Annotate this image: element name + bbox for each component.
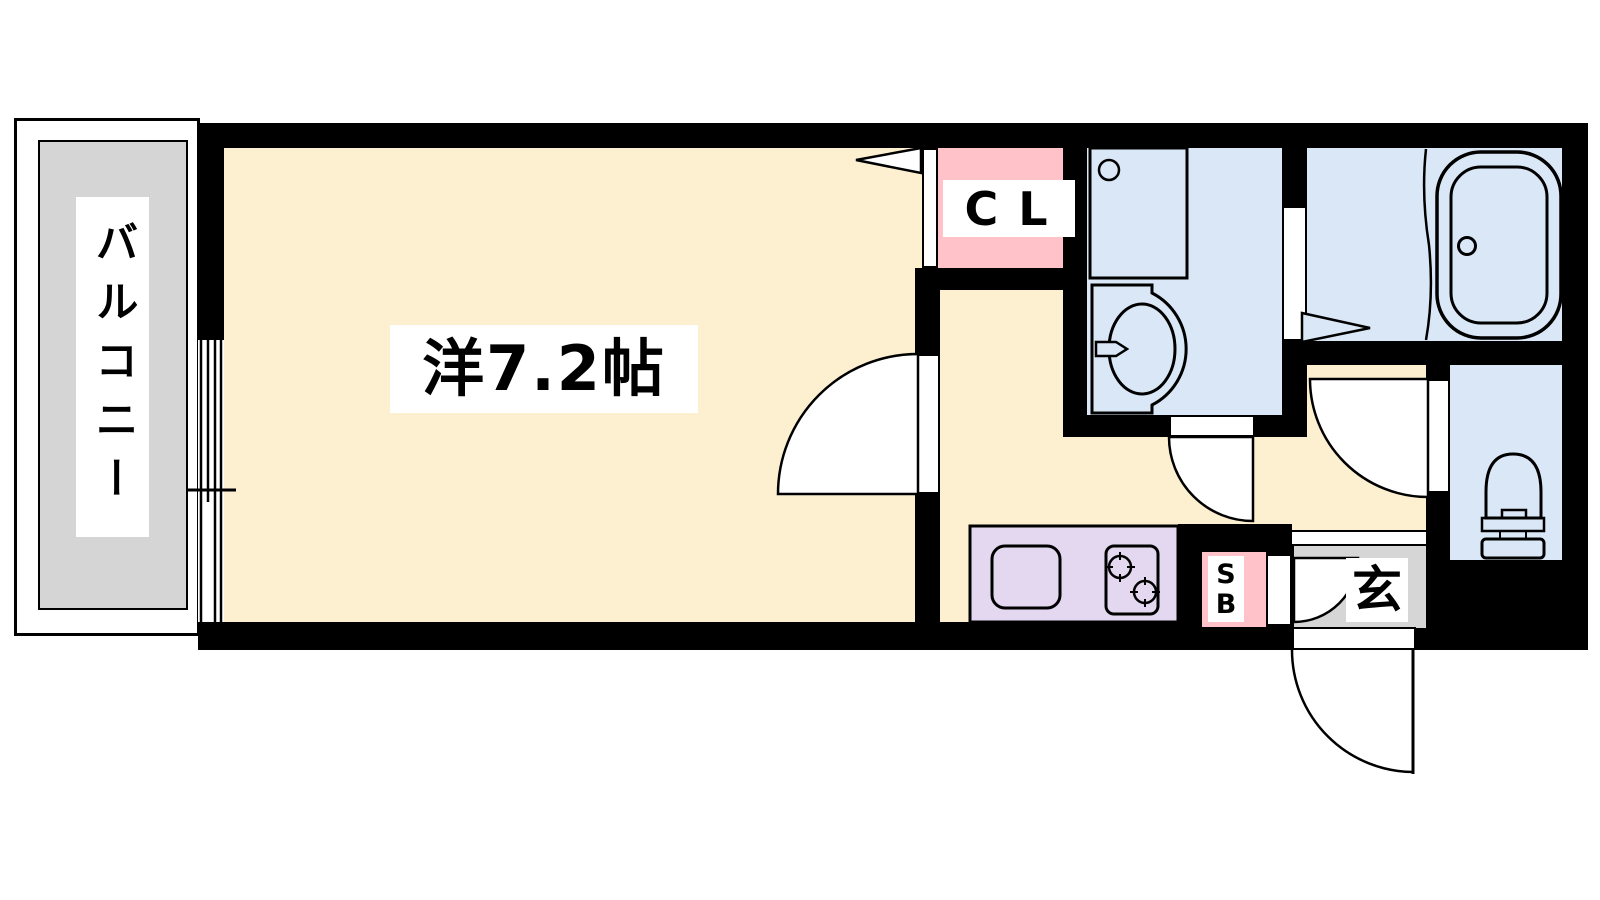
closet-label: CL — [943, 180, 1075, 237]
floor-plan: バルコニー 洋7.2帖 CL SB 玄 — [0, 0, 1600, 900]
folding-door-bathroom-icon — [1302, 313, 1370, 342]
kitchen-counter-icon — [970, 526, 1178, 622]
toilet-icon — [1482, 454, 1544, 558]
washing-machine-icon — [1090, 148, 1187, 278]
swing-door-washroom — [1169, 437, 1253, 521]
balcony-label: バルコニー — [76, 197, 149, 537]
folding-door-closet-icon — [856, 148, 921, 173]
washbasin-icon — [1092, 285, 1186, 413]
main-room-label: 洋7.2帖 — [390, 325, 698, 413]
entrance-label: 玄 — [1346, 558, 1408, 622]
bathtub-icon — [1424, 149, 1561, 340]
swing-door-toilet — [1310, 379, 1428, 497]
sliding-window-icon — [188, 340, 236, 622]
shoebox-label: SB — [1208, 556, 1244, 622]
front-door-icon — [1292, 650, 1414, 774]
swing-door-main-room — [778, 354, 918, 494]
fixtures-overlay — [0, 0, 1600, 900]
